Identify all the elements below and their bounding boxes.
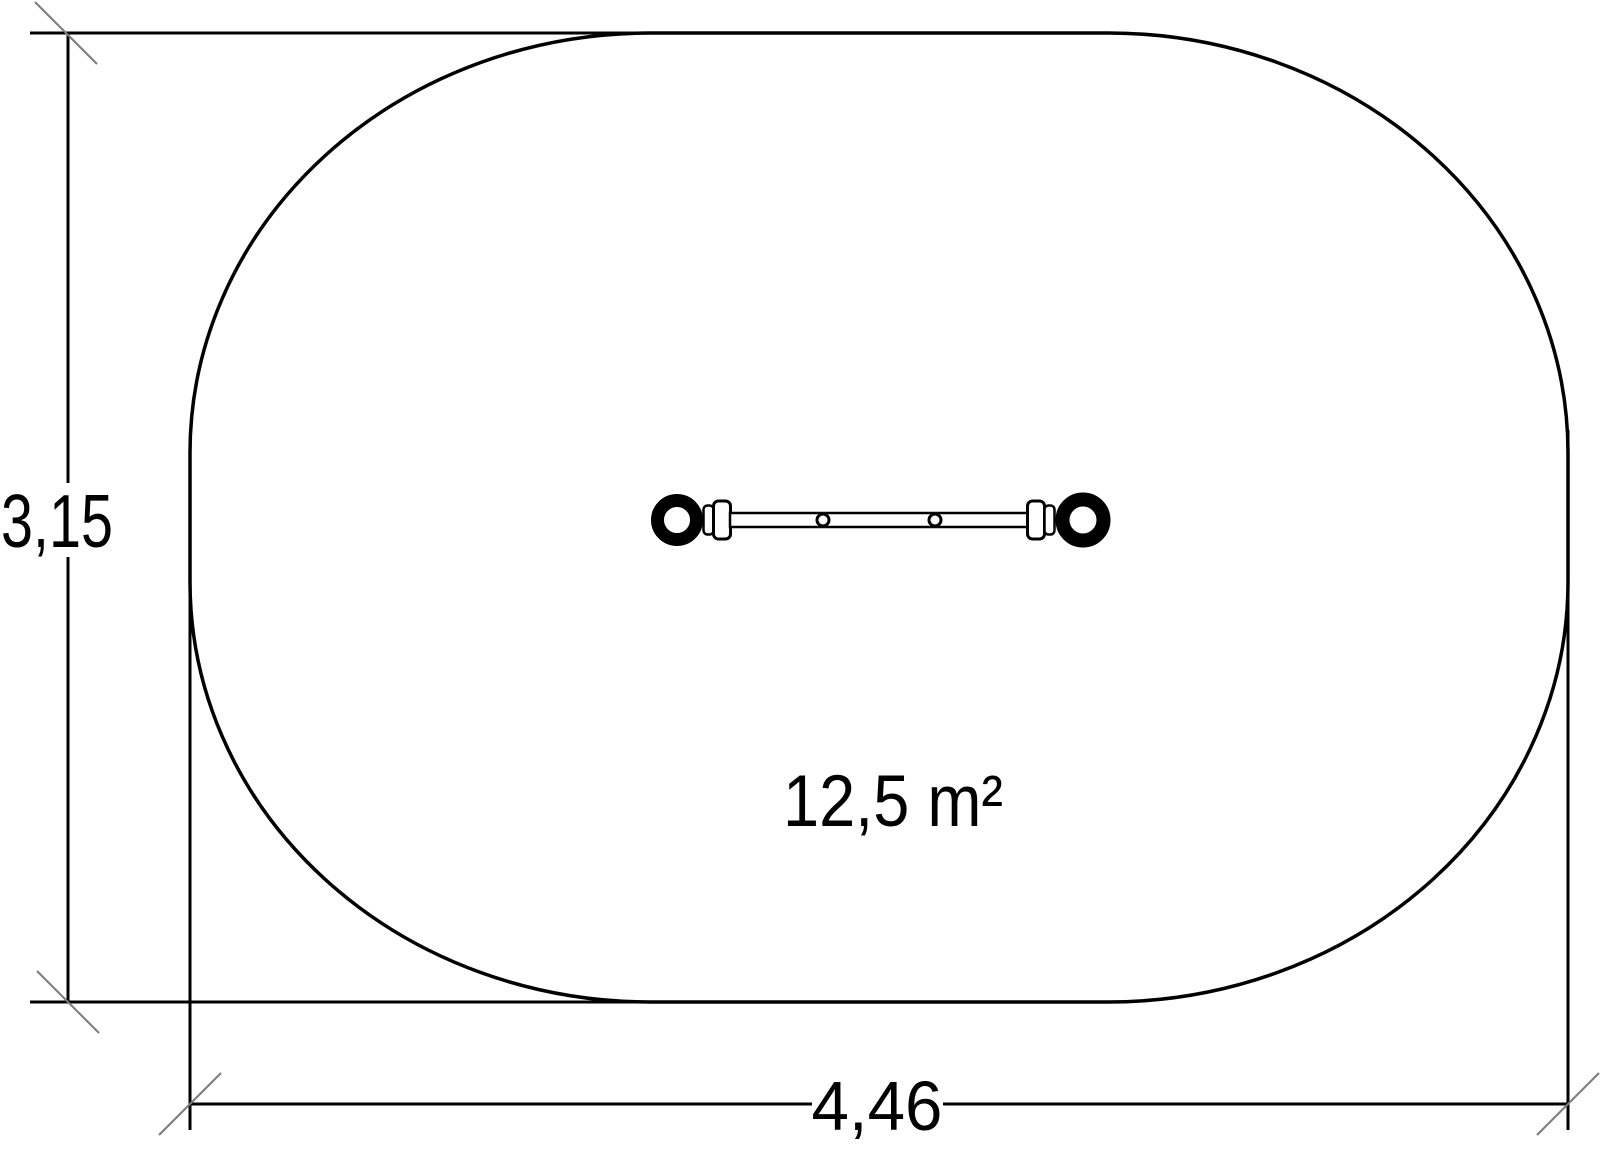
left-eyelet-ring — [658, 501, 697, 540]
beam-hole-left — [817, 514, 829, 526]
right-shackle-collar — [1045, 506, 1055, 535]
left-shackle-body — [714, 501, 731, 539]
technical-drawing-canvas: 3,15 4,46 12,5 m² — [0, 0, 1600, 1166]
right-eyelet-ring — [1063, 500, 1104, 541]
balance-beam-top-view — [658, 500, 1104, 541]
area-label: 12,5 m² — [783, 761, 1003, 842]
width-dimension-label: 4,46 — [812, 1067, 943, 1145]
right-shackle-body — [1028, 501, 1045, 539]
beam-hole-right — [929, 514, 941, 526]
beam-bar — [730, 513, 1028, 527]
height-dimension-label: 3,15 — [1, 479, 113, 563]
